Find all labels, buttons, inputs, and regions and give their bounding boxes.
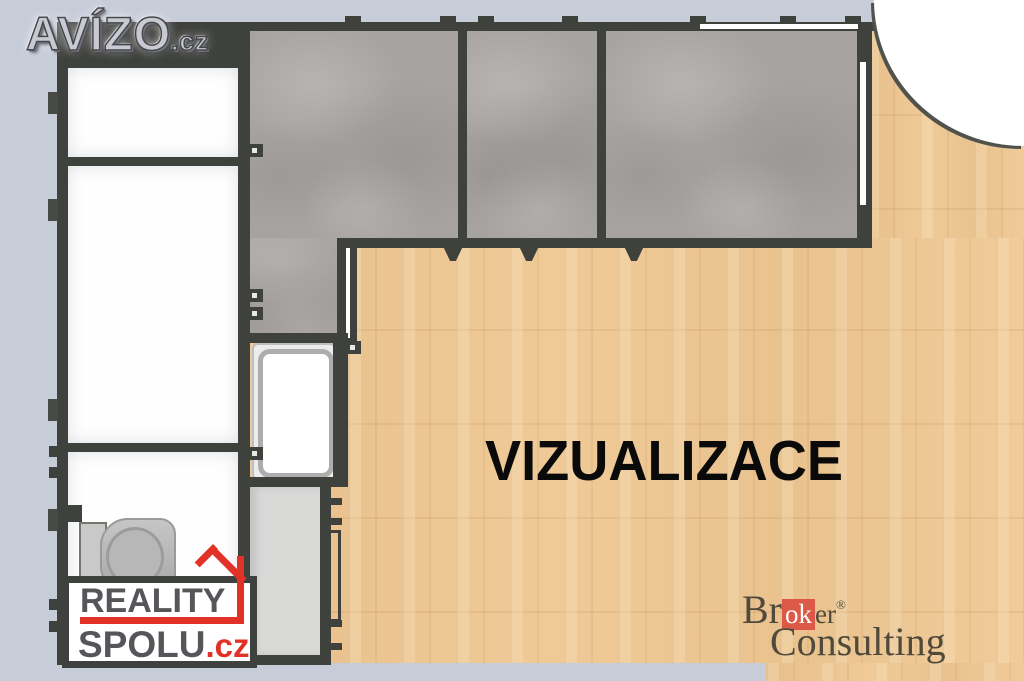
concrete-room-right: [606, 31, 857, 238]
radiator-bracket: [326, 498, 342, 505]
avizo-logo: AVÍZO.cz: [26, 10, 209, 57]
window-right: [860, 62, 866, 205]
white-room-middle: [68, 166, 238, 443]
door-hinge: [250, 289, 263, 302]
wall-bump: [690, 16, 706, 23]
door-hinge: [49, 446, 61, 457]
corridor-floor: [250, 487, 320, 655]
door-hinge: [348, 341, 361, 354]
avizo-logo-text: AVÍZO: [26, 7, 171, 60]
wall-left: [57, 22, 68, 665]
wall-gray-divider-2: [597, 31, 606, 238]
reality-line2: SPOLU.cz: [78, 626, 250, 663]
watermark-text: VIZUALIZACE: [485, 428, 843, 494]
door-hinge: [49, 621, 61, 632]
wall-socket: [48, 199, 58, 221]
radiator-bracket: [326, 620, 342, 627]
wall-bump: [562, 16, 578, 23]
wall-bump: [845, 16, 861, 23]
broker-line2: Consulting: [770, 622, 946, 662]
wall-bump: [478, 16, 494, 23]
wall-bump: [440, 16, 456, 23]
avizo-logo-suffix: .cz: [171, 26, 209, 56]
door-hinge: [49, 467, 61, 478]
wall-shower-right: [333, 338, 348, 487]
concrete-corridor: [250, 238, 347, 338]
wall-socket: [48, 92, 58, 114]
wall-niche-step-top: [68, 505, 82, 522]
wall-gray-divider-1: [458, 31, 467, 238]
reality-line1: REALITY: [80, 584, 225, 618]
radiator-bracket: [326, 643, 342, 650]
reality-frame-vertical: [237, 556, 244, 624]
door-hinge: [250, 144, 263, 157]
wall-divider-1: [68, 157, 238, 166]
reality-line2-text: SPOLU: [78, 624, 205, 665]
wood-floor-bottom-right: [766, 663, 1024, 681]
door-hinge: [49, 599, 61, 610]
radiator-bracket: [326, 518, 342, 525]
concrete-room-middle: [467, 31, 597, 238]
wall-divider-2: [68, 443, 238, 452]
radiator: [322, 530, 341, 622]
wall-corridor-double-slit: [346, 248, 350, 338]
door-hinge: [250, 307, 263, 320]
wall-bump: [345, 16, 361, 23]
concrete-room-left: [250, 31, 458, 238]
wall-socket: [48, 399, 58, 421]
shower-basin: [258, 349, 334, 478]
registered-mark: ®: [836, 597, 846, 612]
floorplan-visualization: AVÍZO.cz VIZUALIZACE REALITY SPOLU.cz Br…: [0, 0, 1024, 681]
wall-socket: [48, 509, 58, 531]
white-room-top: [68, 68, 238, 157]
wall-shower-bottom: [250, 477, 348, 487]
broker-line2-text: Consulting: [770, 619, 946, 664]
wall-gray-bottom: [337, 238, 872, 248]
door-hinge: [250, 447, 263, 460]
window-top: [700, 24, 858, 29]
wall-bump: [780, 16, 796, 23]
reality-line2-suffix: .cz: [205, 627, 249, 664]
broker-consulting-logo: Broker® Consulting: [742, 590, 946, 662]
